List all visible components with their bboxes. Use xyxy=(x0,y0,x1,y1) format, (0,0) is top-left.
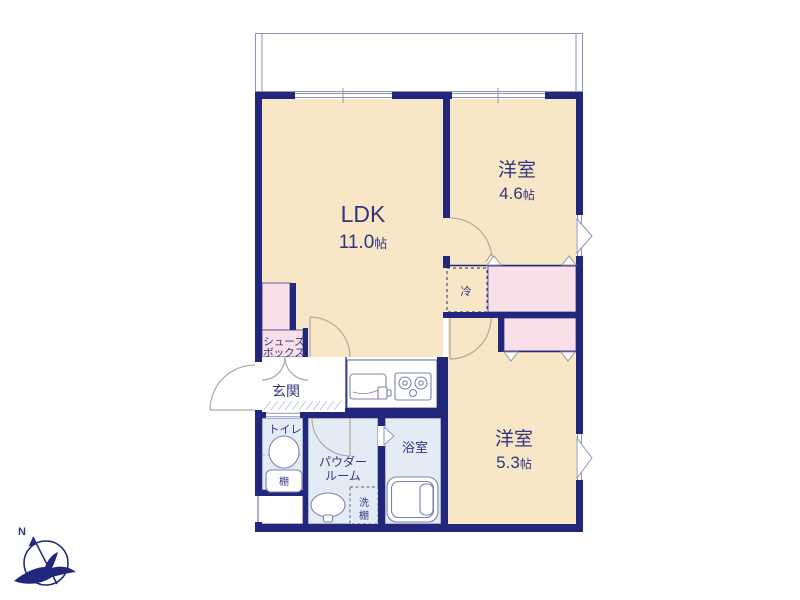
window-bedroom2-right xyxy=(577,434,592,480)
ldk-bedroom1-door-gap-floor xyxy=(443,218,450,256)
floorplan-image: LDK 11.0帖 洋室 4.6帖 洋室 5.3帖 玄関 シューズ ボックス ト… xyxy=(0,0,800,600)
wall-kitchen-bottom xyxy=(345,408,448,418)
toilet-door-opening xyxy=(266,412,300,418)
closet1-fill xyxy=(488,266,576,312)
entrance-label: 玄関 xyxy=(272,383,300,399)
entrance-door xyxy=(210,365,255,410)
floorplan-svg: LDK 11.0帖 洋室 4.6帖 洋室 5.3帖 玄関 シューズ ボックス ト… xyxy=(0,0,800,600)
wall-closet2-left xyxy=(498,318,504,352)
service-space xyxy=(258,493,303,524)
toilet-shelf-label: 棚 xyxy=(279,475,289,488)
wall-bath-right xyxy=(441,418,448,524)
shoe-box-label-line2: ボックス xyxy=(263,347,305,359)
ldk-side-closet-fill xyxy=(262,283,290,330)
closet2-fill xyxy=(504,318,576,351)
wall-kitchen-right xyxy=(437,357,448,418)
wall-ldk-bedroom1 xyxy=(443,92,450,218)
toilet-label: トイレ xyxy=(269,424,302,436)
powder-room-label-line2: ルーム xyxy=(325,469,361,483)
refrigerator-label: 冷 xyxy=(461,285,472,298)
balcony-outline xyxy=(256,34,583,92)
ldk-label: LDK xyxy=(341,201,386,227)
window-bedroom1-right xyxy=(577,215,592,256)
bedroom1-floor xyxy=(450,99,576,266)
ldk-area-label: 11.0帖 xyxy=(339,232,388,253)
bedroom2-label: 洋室 xyxy=(495,428,533,450)
wall-right-upper xyxy=(576,92,583,215)
wash-shelf-char1: 洗 xyxy=(359,497,369,509)
wall-left-lower xyxy=(255,410,262,493)
wash-shelf-char2: 棚 xyxy=(359,509,369,522)
bathtub xyxy=(387,477,438,522)
wall-bottom xyxy=(255,524,583,532)
compass-north-label: N xyxy=(18,526,26,538)
kitchen-stove xyxy=(395,373,431,400)
kitchen-sink xyxy=(350,374,391,399)
wall-closet1-bottom xyxy=(443,312,583,318)
wall-left-upper xyxy=(255,92,262,362)
bathroom-label: 浴室 xyxy=(402,440,428,455)
wall-ldk-bedroom1-stub xyxy=(443,256,450,268)
compass: N xyxy=(14,526,76,585)
wall-ldk-closet-right xyxy=(290,283,296,330)
powder-room-label-line1: パウダー xyxy=(319,454,367,469)
balcony xyxy=(256,34,583,92)
wall-toilet-powder xyxy=(303,418,308,524)
bedroom1-label: 洋室 xyxy=(498,159,536,181)
wall-right-lower xyxy=(576,480,583,532)
wall-right-middle xyxy=(576,256,583,434)
